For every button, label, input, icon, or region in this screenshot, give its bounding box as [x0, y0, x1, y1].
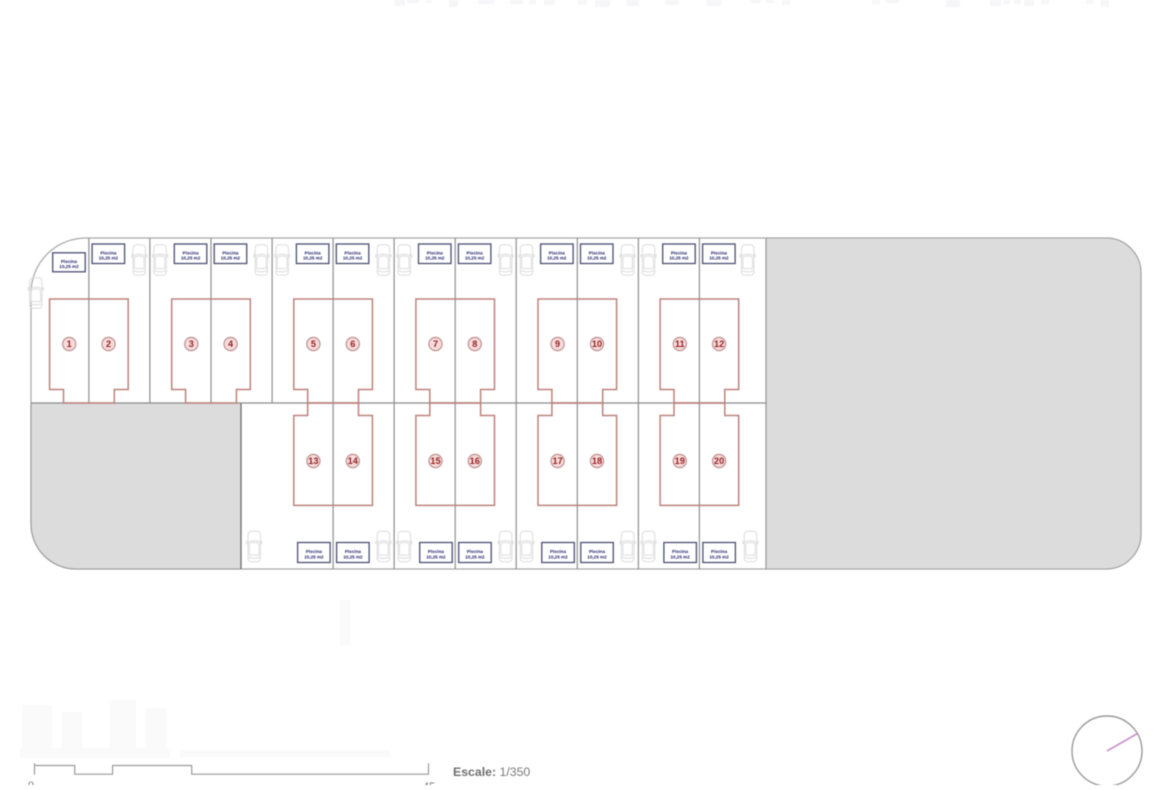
svg-text:14: 14: [348, 456, 359, 466]
svg-text:16: 16: [470, 456, 480, 466]
svg-text:10,25 m2: 10,25 m2: [465, 256, 485, 261]
svg-text:10,25 m2: 10,25 m2: [709, 256, 729, 261]
svg-text:10,25 m2: 10,25 m2: [669, 256, 689, 261]
svg-text:Piscina: Piscina: [427, 250, 444, 255]
svg-text:19: 19: [675, 456, 685, 466]
svg-text:7: 7: [433, 339, 438, 349]
svg-text:10,25 m2: 10,25 m2: [547, 256, 567, 261]
svg-text:10,25 m2: 10,25 m2: [426, 554, 446, 559]
svg-text:20: 20: [714, 456, 724, 466]
svg-text:8: 8: [472, 339, 477, 349]
svg-text:10,25 m2: 10,25 m2: [670, 554, 690, 559]
svg-text:Piscina: Piscina: [549, 250, 566, 255]
svg-text:Piscina: Piscina: [711, 250, 728, 255]
svg-text:Piscina: Piscina: [100, 250, 117, 255]
svg-text:2: 2: [106, 339, 111, 349]
svg-text:10,25 m2: 10,25 m2: [587, 554, 607, 559]
svg-text:10,25 m2: 10,25 m2: [709, 554, 729, 559]
svg-text:15: 15: [430, 456, 440, 466]
svg-text:18: 18: [592, 456, 602, 466]
svg-text:11: 11: [675, 339, 685, 349]
svg-text:10,25 m2: 10,25 m2: [343, 554, 363, 559]
svg-text:10,25 m2: 10,25 m2: [181, 256, 201, 261]
svg-text:10,25 m2: 10,25 m2: [59, 264, 79, 269]
svg-text:Piscina: Piscina: [467, 250, 484, 255]
svg-text:12: 12: [714, 339, 724, 349]
svg-text:4: 4: [228, 339, 234, 349]
svg-text:3: 3: [189, 339, 194, 349]
svg-text:Piscina: Piscina: [183, 250, 200, 255]
svg-text:10,25 m2: 10,25 m2: [425, 256, 445, 261]
svg-text:45: 45: [423, 781, 435, 785]
svg-text:1: 1: [67, 339, 72, 349]
svg-text:10,25 m2: 10,25 m2: [304, 554, 324, 559]
svg-text:10,25 m2: 10,25 m2: [221, 256, 241, 261]
svg-text:Escale: 1/350: Escale: 1/350: [453, 765, 530, 779]
svg-text:6: 6: [350, 339, 355, 349]
svg-text:13: 13: [308, 456, 318, 466]
svg-text:Piscina: Piscina: [345, 250, 362, 255]
svg-text:10,25 m2: 10,25 m2: [548, 554, 568, 559]
svg-text:10,25 m2: 10,25 m2: [587, 256, 607, 261]
svg-text:10,25 m2: 10,25 m2: [465, 554, 485, 559]
svg-text:Piscina: Piscina: [589, 250, 606, 255]
svg-text:Piscina: Piscina: [305, 250, 322, 255]
svg-text:Piscina: Piscina: [222, 250, 239, 255]
svg-text:10,25 m2: 10,25 m2: [303, 256, 323, 261]
svg-text:10,25 m2: 10,25 m2: [343, 256, 363, 261]
svg-text:17: 17: [552, 456, 562, 466]
svg-text:10: 10: [592, 339, 602, 349]
svg-text:Piscina: Piscina: [671, 250, 688, 255]
svg-text:10,25 m2: 10,25 m2: [99, 256, 119, 261]
svg-text:5: 5: [311, 339, 316, 349]
svg-text:0: 0: [28, 780, 34, 785]
svg-text:9: 9: [555, 339, 560, 349]
